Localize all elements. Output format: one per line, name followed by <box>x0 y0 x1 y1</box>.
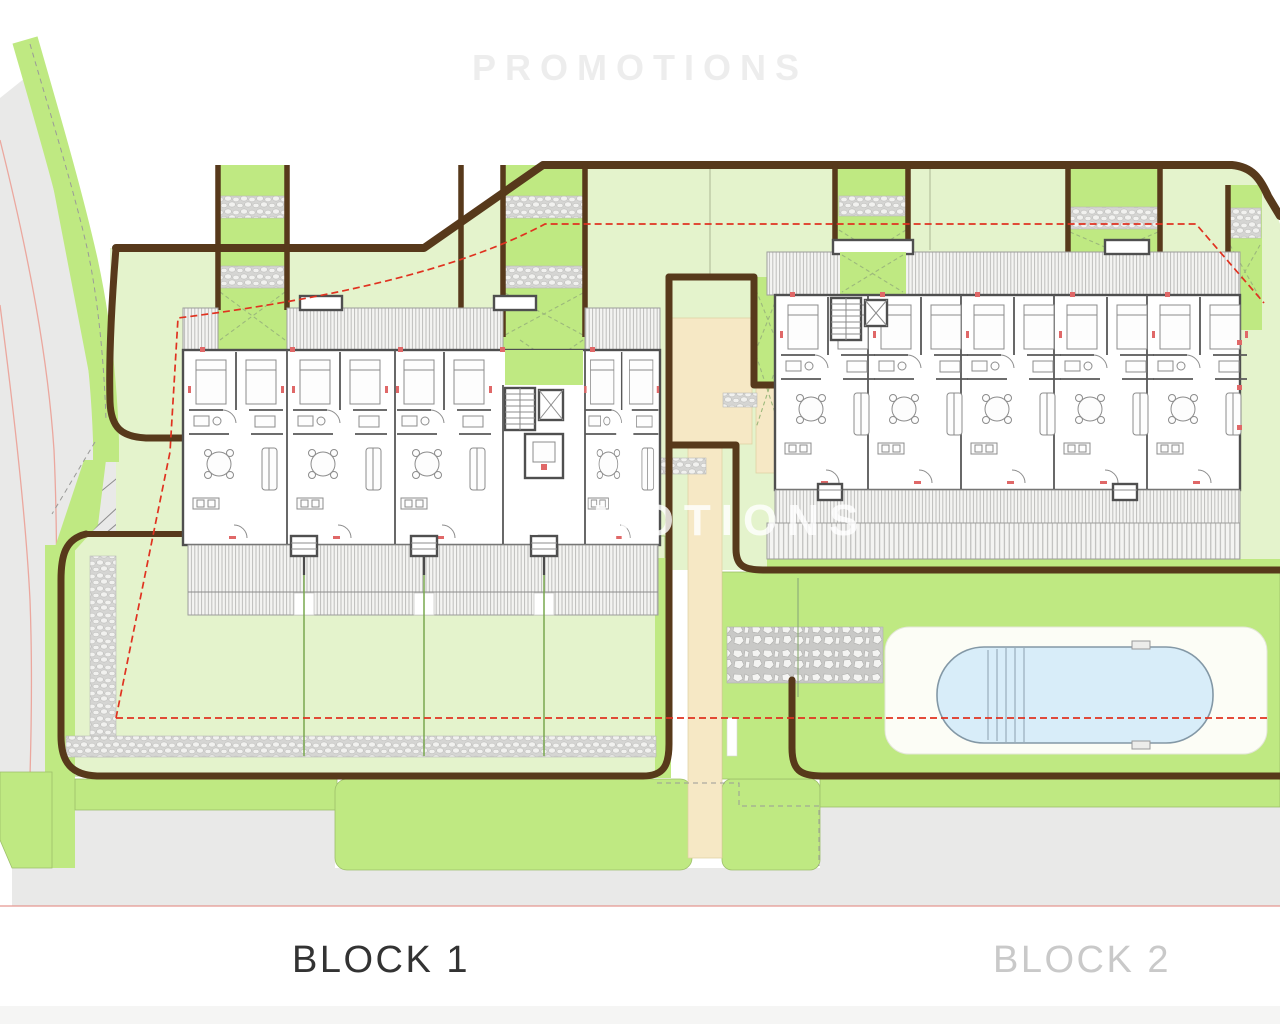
block1-roof <box>287 308 503 350</box>
stairs-icon <box>831 298 861 340</box>
watermark: PROMOTIONS <box>468 496 869 545</box>
lawn-bottom-band <box>75 779 337 810</box>
stepping-stones <box>723 393 757 407</box>
cobblestone-path <box>90 556 116 757</box>
block1-roof <box>585 308 660 350</box>
site-plan-page: PROMOTIONS PROMOTIONS BLOCK 1 BLOCK 2 <box>0 0 1280 1024</box>
site-plan-drawing: PROMOTIONS PROMOTIONS BLOCK 1 BLOCK 2 <box>0 0 1280 1024</box>
bottom-margin <box>0 1006 1280 1024</box>
cobblestone-patch <box>727 627 883 683</box>
stair-bulkhead <box>300 296 342 310</box>
cobblestone-band <box>220 196 286 218</box>
cobblestone-band <box>505 196 584 218</box>
block1-label: BLOCK 1 <box>292 939 470 981</box>
cobblestone-band <box>839 196 907 216</box>
lawn-bottom-band <box>820 779 1280 807</box>
path-slot <box>727 718 737 756</box>
cobblestone-band <box>1230 208 1261 238</box>
watermark-top: PROMOTIONS <box>472 47 808 88</box>
stair-bulkhead <box>833 240 913 254</box>
stair-bulkhead <box>494 296 536 310</box>
planting-shaft <box>218 165 287 350</box>
stairs-icon <box>505 388 535 430</box>
cobblestone-band <box>505 266 584 288</box>
block1-roof <box>183 308 218 350</box>
pool-area <box>885 627 1267 754</box>
pool-ladder-icon <box>1132 641 1150 649</box>
cobblestone-path <box>66 736 656 757</box>
stepping-stones <box>658 458 706 474</box>
block2-roof <box>767 252 1240 295</box>
lawn-bottom-band <box>335 779 692 870</box>
block2-label: BLOCK 2 <box>993 939 1171 981</box>
cobblestone-band <box>220 266 286 288</box>
stair-bulkhead <box>1105 240 1149 254</box>
pool <box>937 647 1213 743</box>
cobblestone-band <box>1070 207 1159 229</box>
lawn-bottom-band <box>722 779 820 870</box>
courtyard-path <box>671 318 752 444</box>
pool-ladder-icon <box>1132 741 1150 749</box>
